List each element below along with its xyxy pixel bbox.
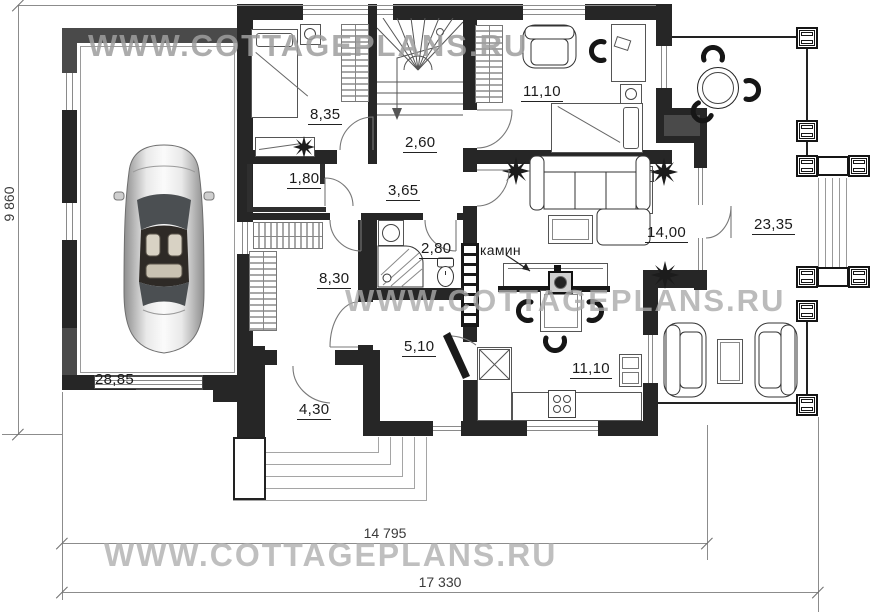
room-label-bedroom2: 11,10 [521,83,563,102]
room-label-kitchen: 11,10 [570,360,612,379]
watermark-bottom: WWW.COTTAGEPLANS.RU [104,537,557,574]
dl-segment [707,425,708,560]
room-label-garage: 28,85 [93,371,136,390]
watermark-top: WWW.COTTAGEPLANS.RU [88,28,528,64]
room-label-bedroom1: 8,35 [308,106,342,125]
room-label-hallway: 5,10 [402,338,436,357]
shape [477,110,512,148]
room-label-closet: 1,80 [287,170,321,189]
shape [325,178,353,206]
room-label-living: 14,00 [645,224,688,243]
room-label-stair-hall: 2,60 [403,134,437,153]
dim-text-outer: 17 330 [395,574,485,590]
dim-ext-top [18,5,656,6]
shape [477,170,509,206]
dim-text-vertical: 9 860 [1,169,17,239]
dl-segment [2,434,62,435]
shape [706,206,731,238]
fireplace-label: камин [478,242,523,259]
dl-segment [818,417,819,612]
shape [340,117,373,150]
room-label-terrace: 23,35 [752,216,795,235]
watermark-middle: WWW.COTTAGEPLANS.RU [345,283,785,319]
dim-line-vertical [18,5,19,435]
room-label-corridor: 3,65 [386,182,420,201]
room-label-bathroom: 2,80 [419,240,453,259]
room-label-porch: 4,30 [297,401,331,420]
dl-segment [62,392,63,600]
shape [293,366,330,403]
shape [330,220,361,251]
dim-line-outer [62,592,818,593]
floor-plan: 8,35 2,60 1,80 3,65 11,10 14,00 23,35 2,… [0,0,871,612]
